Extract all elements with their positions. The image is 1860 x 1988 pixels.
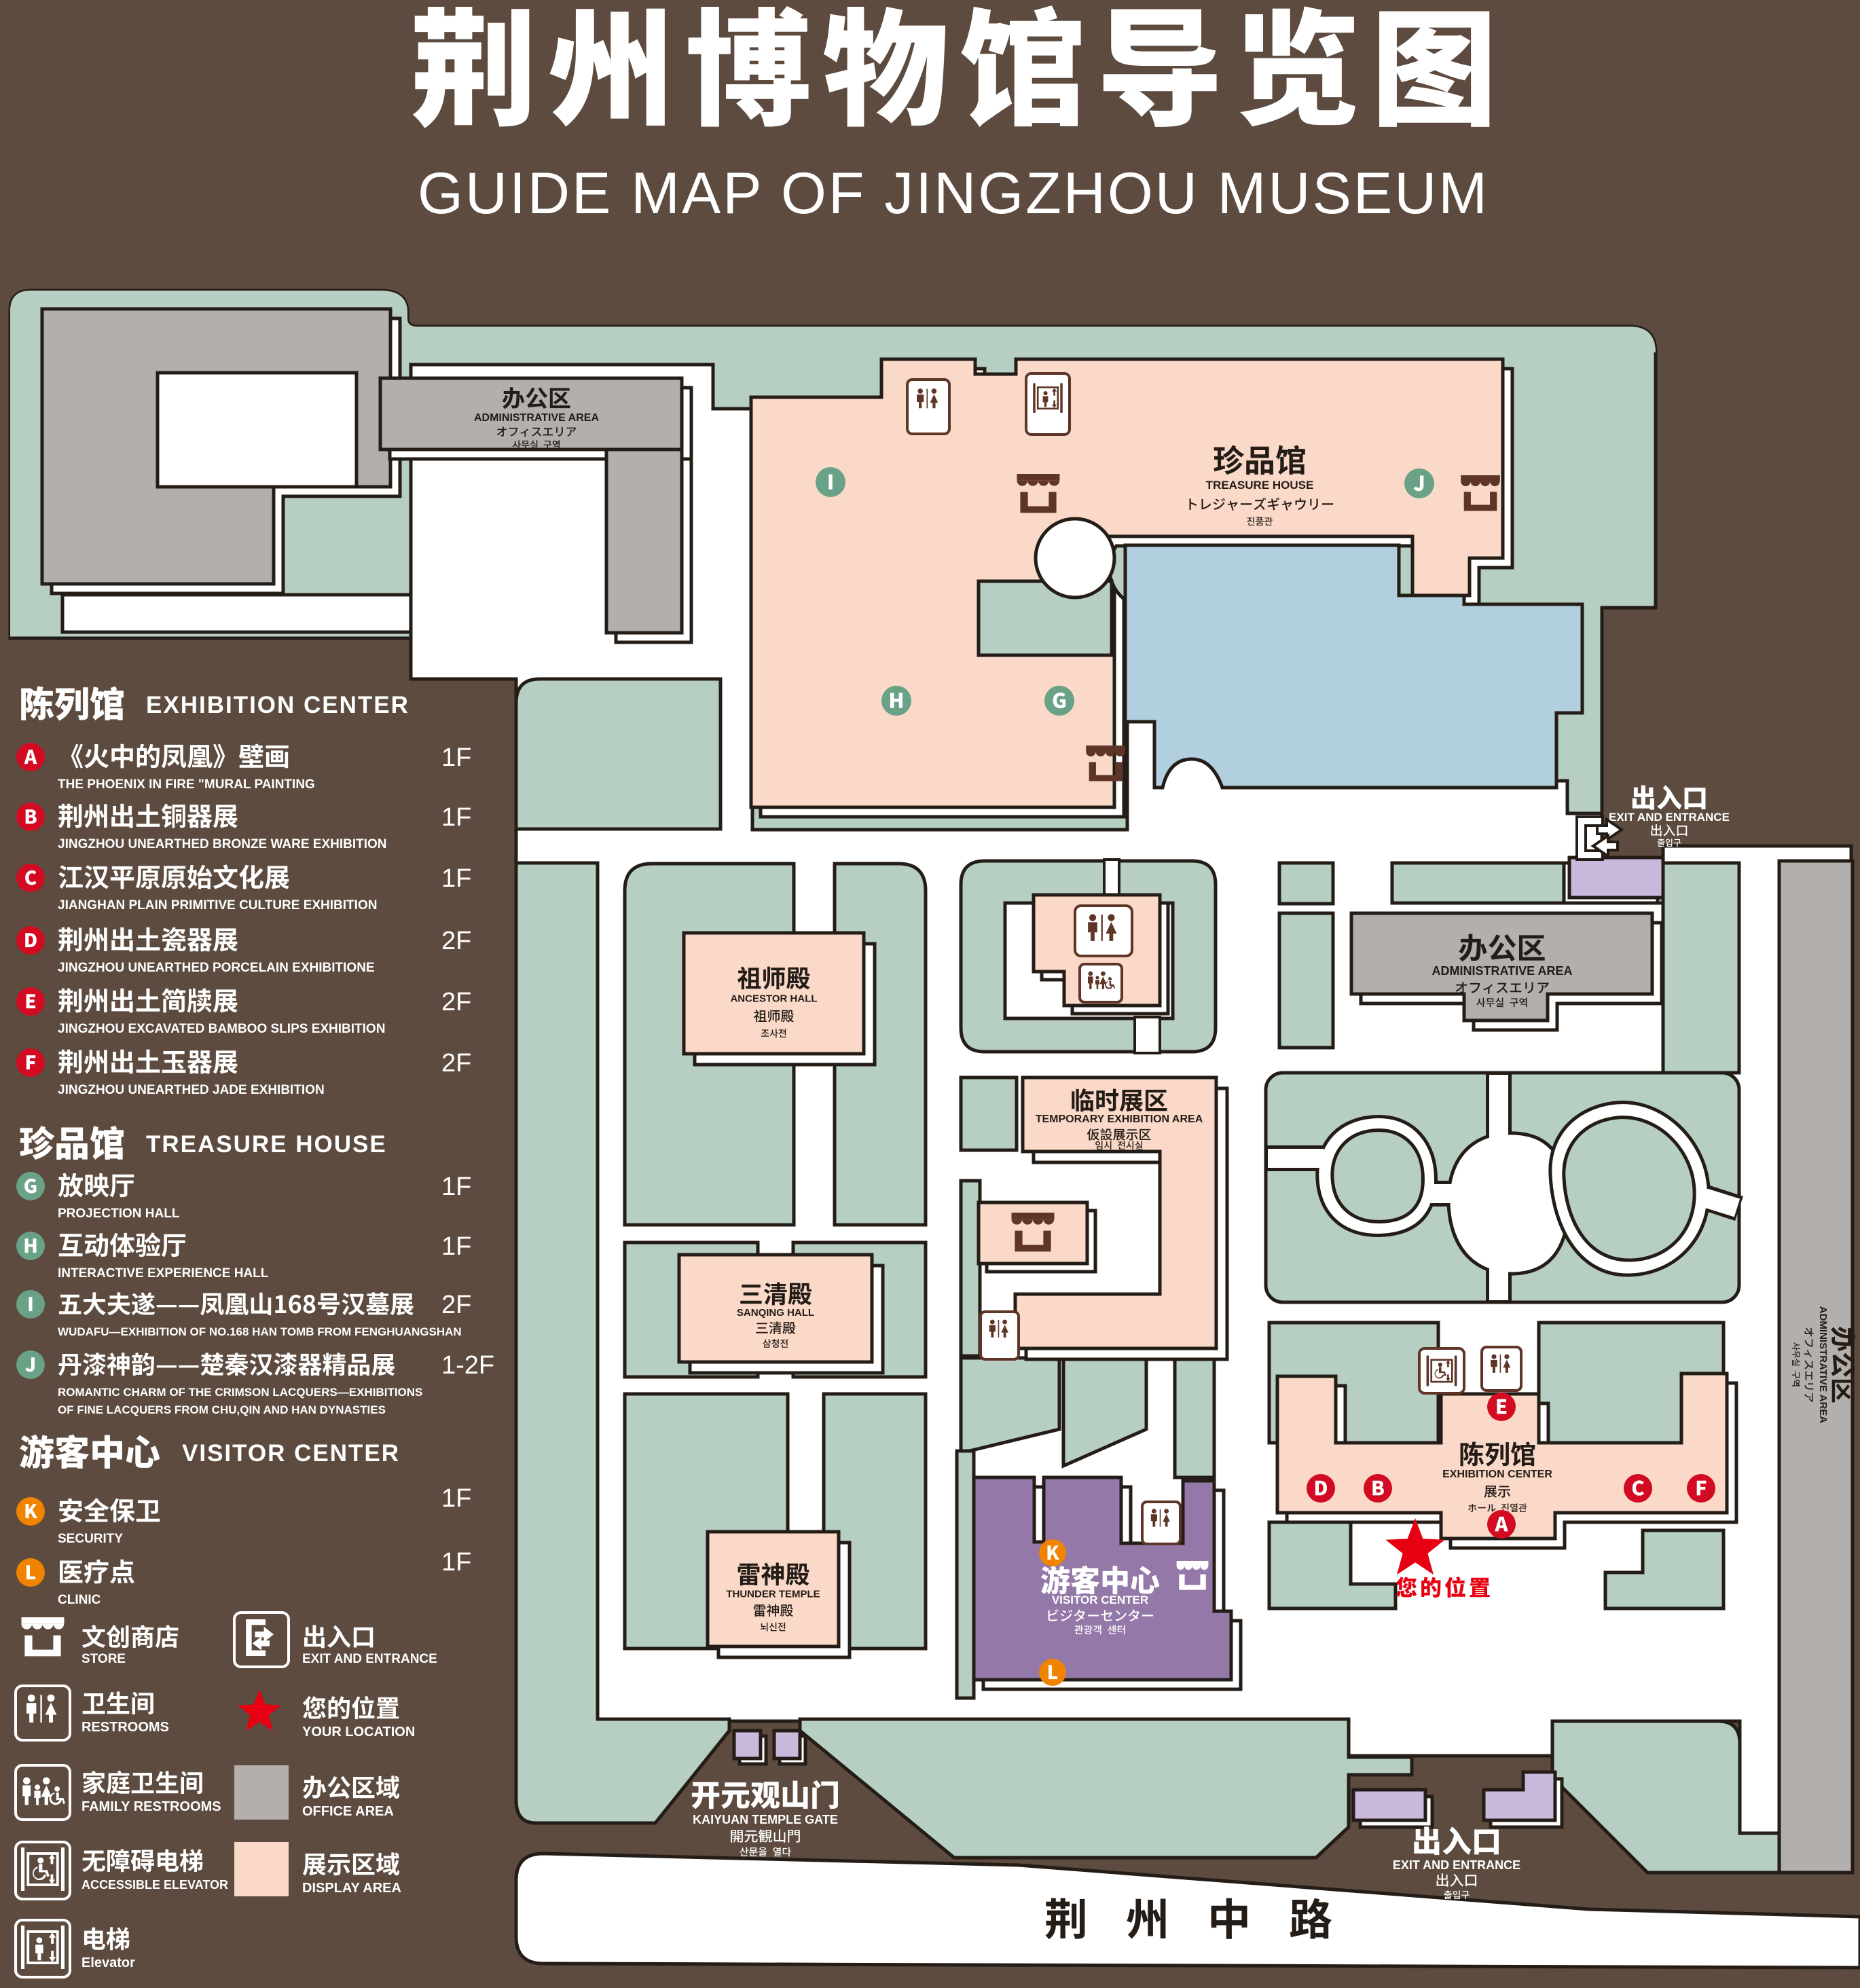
svg-text:RESTROOMS: RESTROOMS — [81, 1720, 169, 1735]
svg-text:INTERACTIVE EXPERIENCE HALL: INTERACTIVE EXPERIENCE HALL — [58, 1266, 269, 1281]
svg-text:2F: 2F — [441, 1049, 471, 1078]
svg-text:OF FINE LACQUERS FROM CHU,QIN: OF FINE LACQUERS FROM CHU,QIN AND HAN DY… — [58, 1403, 386, 1416]
svg-text:VISITOR CENTER: VISITOR CENTER — [182, 1440, 400, 1467]
svg-text:ANCESTOR HALL: ANCESTOR HALL — [730, 993, 817, 1004]
svg-text:2F: 2F — [441, 988, 471, 1016]
svg-text:STORE: STORE — [81, 1652, 126, 1666]
svg-text:KAIYUAN TEMPLE GATE: KAIYUAN TEMPLE GATE — [693, 1813, 838, 1826]
svg-text:ACCESSIBLE ELEVATOR: ACCESSIBLE ELEVATOR — [81, 1878, 228, 1892]
svg-text:TEMPORARY EXHIBITION AREA: TEMPORARY EXHIBITION AREA — [1036, 1113, 1203, 1125]
svg-text:PROJECTION HALL: PROJECTION HALL — [58, 1207, 180, 1221]
svg-text:JINGZHOU UNEARTHED BRONZE WARE: JINGZHOU UNEARTHED BRONZE WARE EXHIBITIO… — [58, 837, 387, 851]
svg-text:DISPLAY AREA: DISPLAY AREA — [302, 1881, 401, 1896]
svg-text:EXIT AND ENTRANCE: EXIT AND ENTRANCE — [1609, 811, 1730, 824]
svg-text:1F: 1F — [441, 864, 471, 893]
svg-text:JINGZHOU EXCAVATED BAMBOO SLIP: JINGZHOU EXCAVATED BAMBOO SLIPS EXHIBITI… — [58, 1022, 385, 1036]
svg-text:2F: 2F — [441, 1291, 471, 1319]
svg-text:1F: 1F — [441, 1173, 471, 1201]
svg-text:OFFICE AREA: OFFICE AREA — [302, 1804, 394, 1819]
svg-text:GUIDE MAP OF JINGZHOU MUSEUM: GUIDE MAP OF JINGZHOU MUSEUM — [418, 161, 1489, 226]
svg-text:EXIT AND ENTRANCE: EXIT AND ENTRANCE — [302, 1652, 437, 1666]
svg-text:EXHIBITION CENTER: EXHIBITION CENTER — [146, 692, 409, 718]
svg-text:1F: 1F — [441, 1484, 471, 1513]
svg-text:1-2F: 1-2F — [441, 1351, 494, 1380]
svg-text:SANQING HALL: SANQING HALL — [737, 1307, 814, 1319]
svg-text:WUDAFU—EXHIBITION OF NO.168 HA: WUDAFU—EXHIBITION OF NO.168 HAN TOMB FRO… — [58, 1325, 462, 1338]
svg-text:CLINIC: CLINIC — [58, 1593, 101, 1607]
svg-text:VISITOR CENTER: VISITOR CENTER — [1052, 1594, 1148, 1606]
svg-text:SECURITY: SECURITY — [58, 1532, 123, 1546]
svg-text:1F: 1F — [441, 743, 471, 772]
svg-text:JINGZHOU UNEARTHED PORCELAIN E: JINGZHOU UNEARTHED PORCELAIN EXHIBITIONE — [58, 961, 375, 975]
svg-text:EXIT AND ENTRANCE: EXIT AND ENTRANCE — [1393, 1858, 1520, 1872]
svg-text:2F: 2F — [441, 927, 471, 955]
svg-text:1F: 1F — [441, 803, 471, 832]
svg-text:JIANGHAN PLAIN PRIMITIVE CULTU: JIANGHAN PLAIN PRIMITIVE CULTURE EXHIBIT… — [58, 898, 377, 913]
svg-text:Elevator: Elevator — [81, 1955, 135, 1970]
svg-text:TREASURE HOUSE: TREASURE HOUSE — [1206, 479, 1314, 492]
svg-text:JINGZHOU UNEARTHED JADE EXHIBI: JINGZHOU UNEARTHED JADE EXHIBITION — [58, 1083, 325, 1097]
svg-text:ROMANTIC CHARM OF THE CRIMSON: ROMANTIC CHARM OF THE CRIMSON LACQUERS—E… — [58, 1386, 422, 1399]
svg-text:THE PHOENIX IN FIRE "MURAL PAI: THE PHOENIX IN FIRE "MURAL PAINTING — [58, 777, 315, 792]
svg-text:ADMINISTRATIVE AREA: ADMINISTRATIVE AREA — [1432, 964, 1573, 978]
svg-text:FAMILY RESTROOMS: FAMILY RESTROOMS — [81, 1799, 221, 1814]
svg-text:YOUR LOCATION: YOUR LOCATION — [302, 1725, 415, 1739]
svg-text:EXHIBITION CENTER: EXHIBITION CENTER — [1442, 1469, 1552, 1480]
svg-text:ADMINISTRATIVE AREA: ADMINISTRATIVE AREA — [1817, 1306, 1829, 1424]
svg-text:1F: 1F — [441, 1232, 471, 1261]
svg-text:1F: 1F — [441, 1548, 471, 1577]
svg-text:THUNDER TEMPLE: THUNDER TEMPLE — [726, 1588, 820, 1600]
svg-text:ADMINISTRATIVE AREA: ADMINISTRATIVE AREA — [474, 412, 599, 424]
svg-text:TREASURE HOUSE: TREASURE HOUSE — [146, 1131, 387, 1158]
